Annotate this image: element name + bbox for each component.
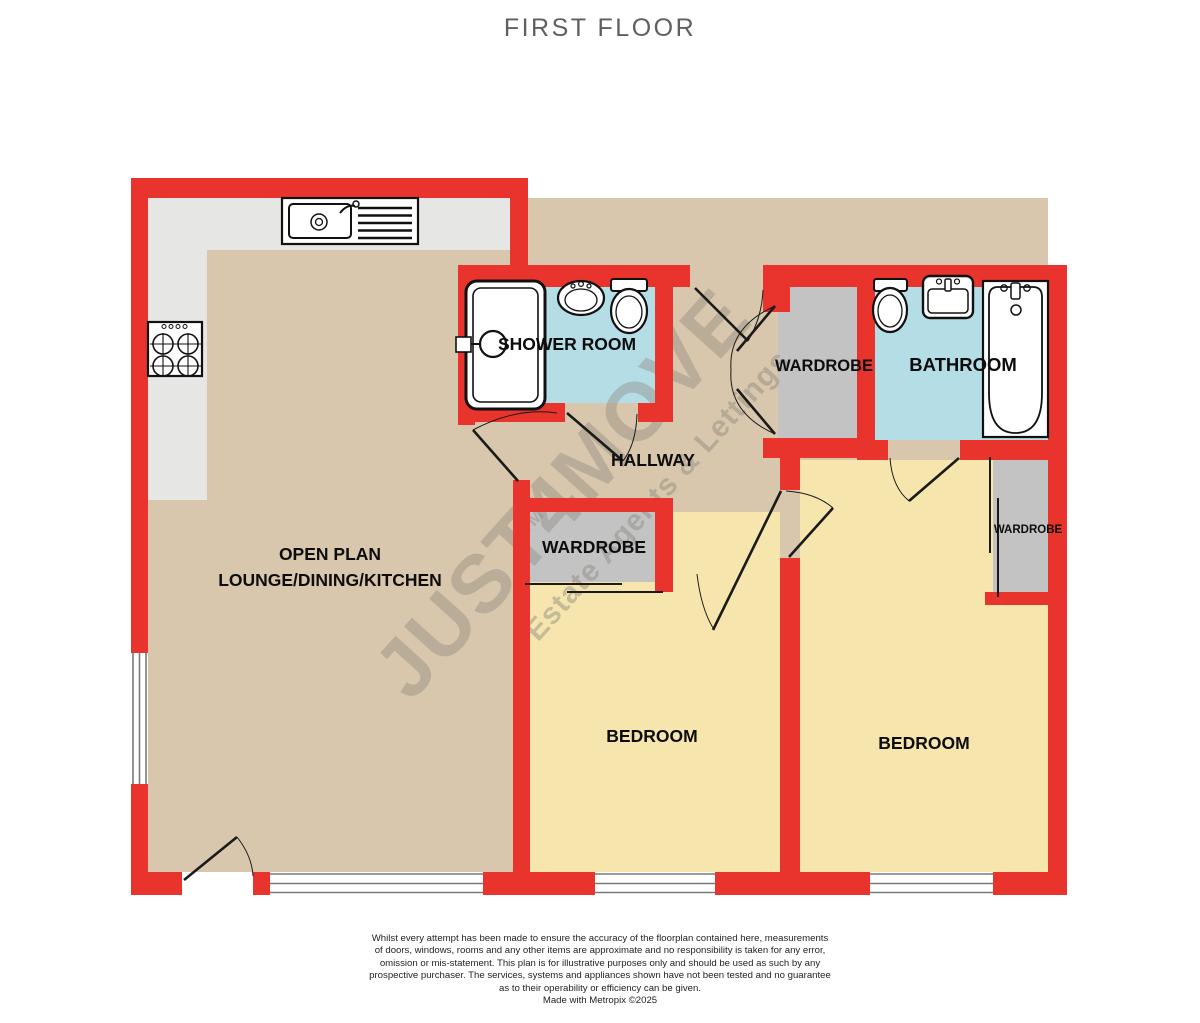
window-bottom-left: [270, 872, 483, 895]
label-hallway: HALLWAY: [611, 450, 695, 470]
label-open-plan-line2: LOUNGE/DINING/KITCHEN: [218, 570, 442, 590]
label-bathroom: BATHROOM: [909, 354, 1017, 375]
shower-room-basin-icon: [558, 281, 604, 315]
disclaimer-line: of doors, windows, rooms and any other i…: [0, 945, 1200, 957]
bathroom-toilet-icon: [873, 279, 907, 332]
disclaimer-line: omission or mis-statement. This plan is …: [0, 958, 1200, 970]
floorplan-page: FIRST FLOOR JUST4MOVE TM Estate Agents &…: [0, 0, 1200, 1023]
label-open-plan-line1: OPEN PLAN: [279, 544, 381, 564]
label-shower-room: SHOWER ROOM: [498, 334, 636, 354]
kitchen-sink-icon: [282, 198, 418, 244]
entrance-door-opening: [182, 872, 253, 895]
window-bottom-bedroom2: [870, 872, 993, 895]
shower-room-toilet-icon: [611, 279, 647, 333]
disclaimer-line: Whilst every attempt has been made to en…: [0, 933, 1200, 945]
disclaimer-line: prospective purchaser. The services, sys…: [0, 970, 1200, 982]
window-bottom-bedroom1: [595, 872, 715, 895]
hob-icon: [148, 322, 202, 377]
metropix-credit: Made with Metropix ©2025: [0, 995, 1200, 1007]
window-left-wall: [131, 653, 148, 784]
label-bedroom-2: BEDROOM: [878, 733, 969, 753]
floorplan-drawing: JUST4MOVE TM Estate Agents & Lettings: [0, 0, 1200, 1023]
label-wardrobe-top: WARDROBE: [775, 357, 873, 375]
label-wardrobe-mid: WARDROBE: [542, 537, 646, 557]
bathroom-basin-icon: [923, 276, 973, 318]
disclaimer-line: as to their operability or efficiency ca…: [0, 983, 1200, 995]
disclaimer: Whilst every attempt has been made to en…: [0, 933, 1200, 1007]
label-bedroom-1: BEDROOM: [606, 726, 697, 746]
label-wardrobe-right: WARDROBE: [994, 524, 1063, 536]
